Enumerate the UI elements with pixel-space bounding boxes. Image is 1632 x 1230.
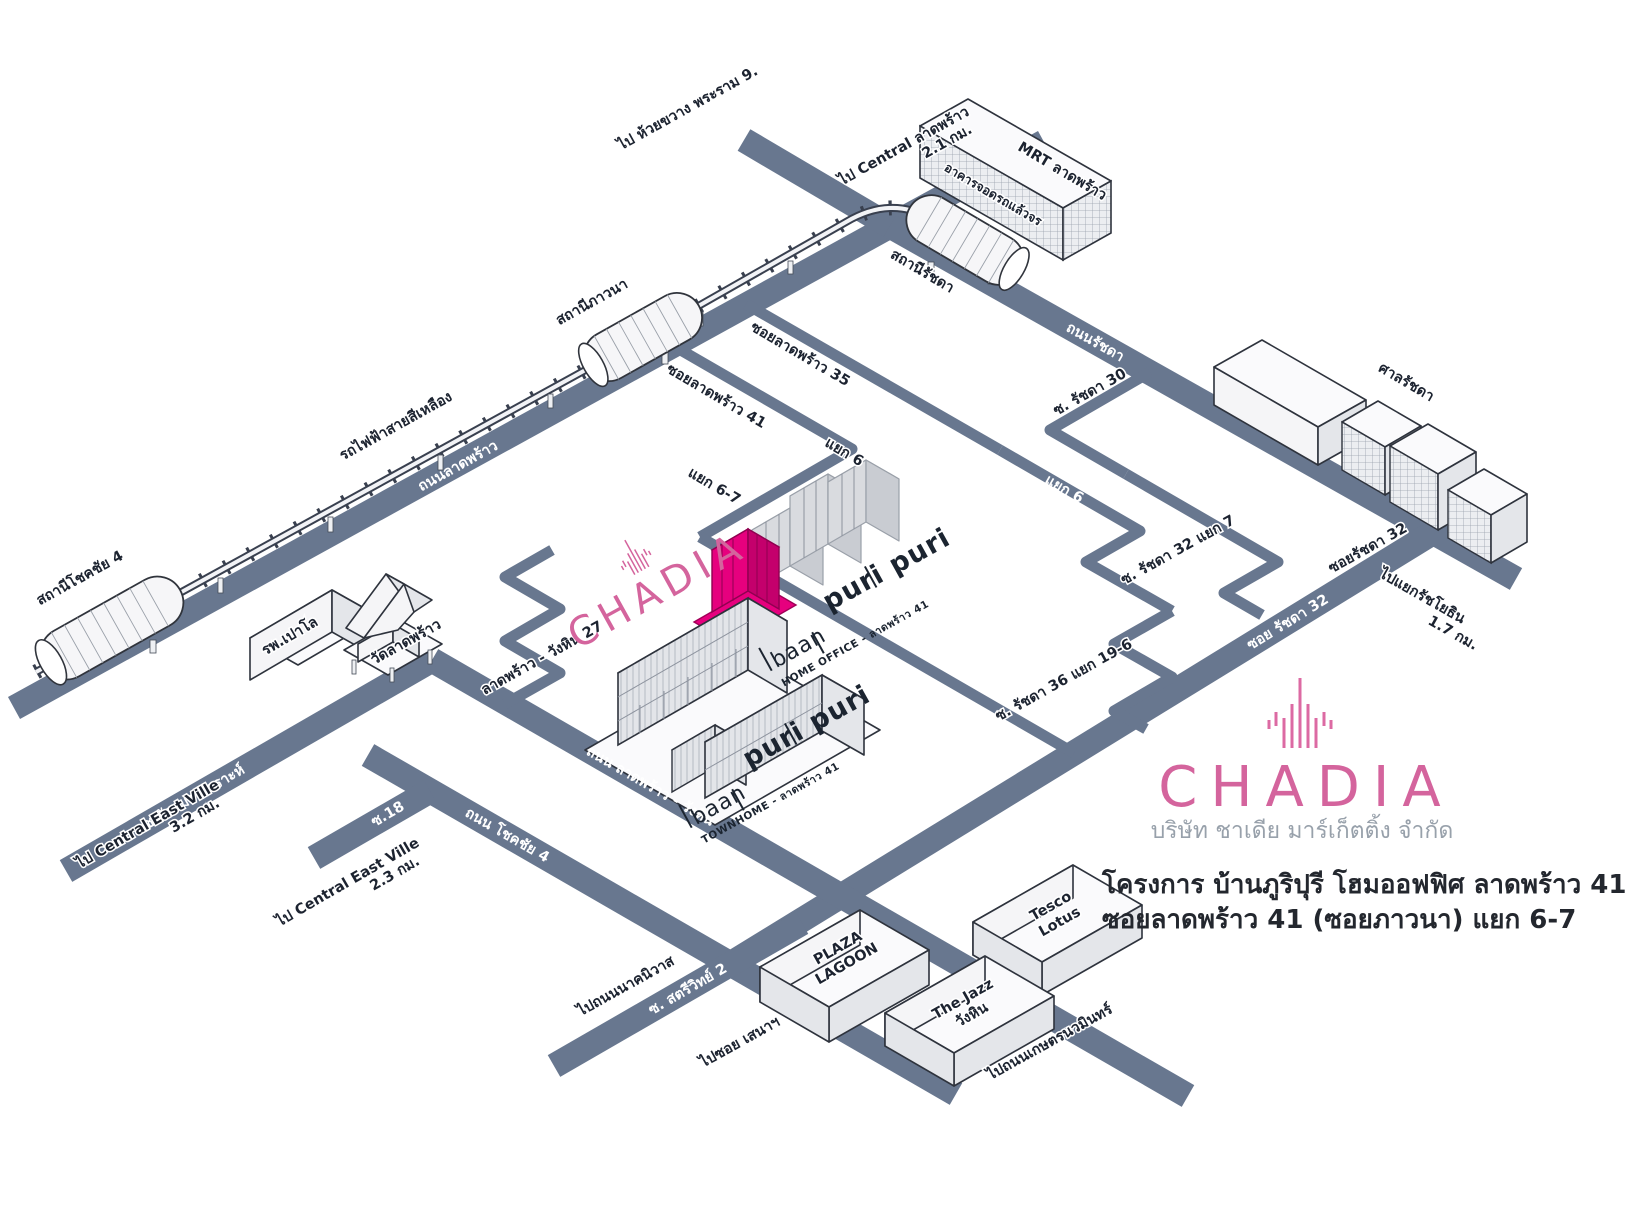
- label-soi-ratchada32-road: ซอย รัชดา 32: [1244, 592, 1331, 654]
- legend-company: บริษัท ชาเดีย มาร์เก็ตติ้ง จำกัด: [1151, 814, 1454, 844]
- map-page: ถนนลาดพร้าว ถนนรัชดา แยก 6 ซอย รัชดา 32 …: [0, 0, 1632, 1230]
- label-soi-sena: ไปซอย เสนาฯ: [695, 1012, 783, 1072]
- map-canvas: ถนนลาดพร้าว ถนนรัชดา แยก 6 ซอย รัชดา 32 …: [0, 0, 1632, 1230]
- legend-brand: CHADIA: [1158, 755, 1453, 820]
- legend-block: CHADIA บริษัท ชาเดีย มาร์เก็ตติ้ง จำกัด …: [1101, 678, 1626, 935]
- label-ratchayothin: ไปแยกรัชโยธิน 1.7 กม.: [1366, 563, 1490, 654]
- label-central-eastville-32-1: ไป Central East Ville: [71, 775, 222, 873]
- soi-ladprao35: [746, 304, 1000, 450]
- legend-project-line1: โครงการ บ้านภูริปุรี โฮมออฟฟิศ ลาดพร้าว …: [1101, 868, 1626, 901]
- label-chokchai4-road: ถนน โชคชัย 4: [462, 803, 553, 866]
- chadia-bars-icon-legend: [1268, 678, 1333, 748]
- label-central-eastville-32: ไป Central East Ville 3.2 กม.: [71, 775, 230, 887]
- label-ratchada-court: ศาลรัชดา: [1376, 360, 1437, 405]
- legend-project-line2: ซอยลาดพร้าว 41 (ซอยภาวนา) แยก 6-7: [1102, 905, 1576, 935]
- label-yaek6-road: แยก 6: [1042, 472, 1086, 507]
- label-huai-khwang: ไป ห้วยขวาง พระราม 9.: [613, 62, 761, 155]
- label-yaek67: แยก 6-7: [685, 465, 743, 508]
- soi-yaek6: [1000, 450, 1172, 611]
- label-ratchayothin-1: ไปแยกรัชโยธิน: [1375, 563, 1469, 627]
